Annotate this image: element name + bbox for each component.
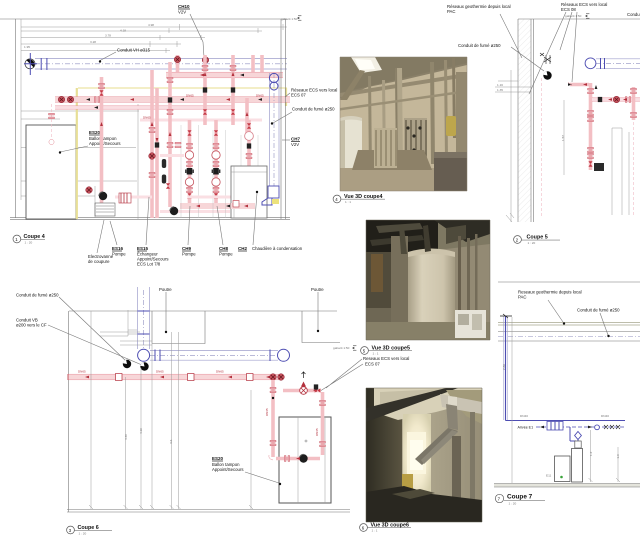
- svg-text:ECS 07: ECS 07: [365, 362, 380, 367]
- svg-text:6: 6: [362, 525, 365, 530]
- svg-text:ø200 vers le CF: ø200 vers le CF: [16, 323, 47, 328]
- svg-text:DN65: DN65: [186, 94, 194, 98]
- svg-text:Coupe 6: Coupe 6: [78, 525, 99, 531]
- svg-text:1.16: 1.16: [497, 83, 503, 87]
- svg-text:V2V: V2V: [178, 10, 186, 15]
- svg-text:ECS 08: ECS 08: [561, 7, 576, 12]
- svg-text:1 : 1: 1 : 1: [345, 200, 351, 204]
- svg-text:DN65: DN65: [265, 408, 269, 416]
- svg-text:1.0: 1.0: [616, 454, 620, 459]
- svg-text:1 : 20: 1 : 20: [509, 502, 517, 506]
- svg-text:Vue 3D coupe5: Vue 3D coupe5: [372, 345, 410, 351]
- svg-text:E11: E11: [546, 474, 552, 478]
- svg-text:3: 3: [69, 528, 72, 533]
- svg-text:Chaudière à condensation: Chaudière à condensation: [252, 246, 303, 251]
- svg-text:Appoint/Secours: Appoint/Secours: [89, 141, 121, 146]
- svg-text:Pompe: Pompe: [182, 252, 196, 257]
- svg-text:Pompe: Pompe: [112, 252, 126, 257]
- svg-text:2: 2: [516, 237, 519, 242]
- svg-text:1 : 20: 1 : 20: [528, 241, 536, 245]
- svg-text:PAC: PAC: [518, 295, 527, 300]
- svg-text:Réseaux geothermie depuis loca: Réseaux geothermie depuis local: [447, 4, 511, 9]
- svg-text:DN40: DN40: [520, 414, 528, 418]
- svg-text:3.6: 3.6: [169, 439, 173, 444]
- svg-text:Conduit de fumé ø250: Conduit de fumé ø250: [292, 107, 335, 112]
- svg-text:5: 5: [363, 348, 366, 353]
- svg-text:DN40: DN40: [601, 414, 609, 418]
- svg-text:1: 1: [15, 237, 18, 242]
- svg-text:1.95: 1.95: [24, 45, 30, 49]
- svg-text:4.98: 4.98: [148, 23, 154, 27]
- svg-text:DN65: DN65: [256, 94, 264, 98]
- svg-text:ES20: ES20: [89, 130, 101, 135]
- svg-text:ECS Lot 7/8: ECS Lot 7/8: [137, 262, 161, 267]
- svg-text:gabarit 1:50: gabarit 1:50: [565, 14, 582, 18]
- svg-text:4.18: 4.18: [120, 29, 126, 33]
- svg-text:Arivée E1: Arivée E1: [518, 426, 534, 430]
- svg-text:4: 4: [335, 197, 338, 202]
- svg-text:CH2: CH2: [238, 246, 247, 251]
- svg-text:Appoint/Secours: Appoint/Secours: [212, 467, 244, 472]
- svg-text:Coupe 5: Coupe 5: [527, 235, 548, 241]
- svg-text:1.35: 1.35: [497, 88, 503, 92]
- svg-text:1 : 1: 1 : 1: [372, 529, 378, 533]
- svg-text:DN65: DN65: [315, 428, 319, 436]
- svg-text:1.57: 1.57: [561, 135, 565, 141]
- svg-text:Condu: Condu: [627, 12, 640, 17]
- svg-text:Reseaux geothermie depuis loca: Reseaux geothermie depuis local: [518, 290, 582, 295]
- svg-text:ES16: ES16: [112, 246, 124, 251]
- svg-text:2.86: 2.86: [502, 364, 506, 370]
- svg-text:DN65: DN65: [143, 116, 151, 120]
- svg-text:Conduit VH ø315: Conduit VH ø315: [117, 48, 151, 53]
- svg-text:DN65: DN65: [216, 370, 224, 374]
- svg-text:3.28: 3.28: [90, 40, 96, 44]
- svg-text:4.10: 4.10: [139, 428, 143, 434]
- svg-text:Conduit de fumé ø250: Conduit de fumé ø250: [577, 308, 620, 313]
- svg-text:CH7: CH7: [291, 137, 300, 142]
- svg-text:Conduit de fumé ø250: Conduit de fumé ø250: [16, 293, 59, 298]
- svg-text:7: 7: [498, 496, 501, 501]
- svg-text:Conduit de fumé ø250: Conduit de fumé ø250: [458, 43, 501, 48]
- svg-text:1 : 20: 1 : 20: [25, 240, 33, 244]
- svg-text:CH8: CH8: [219, 246, 228, 251]
- svg-text:gabarit 1:50: gabarit 1:50: [281, 17, 298, 21]
- svg-text:gabarit 1:50: gabarit 1:50: [333, 346, 350, 350]
- svg-text:Vue 3D coupe6: Vue 3D coupe6: [371, 522, 409, 528]
- svg-text:Pompe: Pompe: [219, 252, 233, 257]
- svg-text:DN65: DN65: [156, 370, 164, 374]
- svg-text:ECS 07: ECS 07: [291, 93, 306, 98]
- svg-text:CH9: CH9: [182, 246, 191, 251]
- svg-text:DN65: DN65: [78, 370, 86, 374]
- svg-text:ES20: ES20: [212, 456, 224, 461]
- svg-text:de coupure: de coupure: [88, 259, 110, 264]
- svg-text:1.2: 1.2: [589, 451, 593, 456]
- svg-text:ES15: ES15: [137, 246, 149, 251]
- svg-text:Reseaux ECS vers local: Reseaux ECS vers local: [363, 356, 409, 361]
- svg-text:Poutre: Poutre: [159, 287, 172, 292]
- svg-text:V2V: V2V: [291, 142, 299, 147]
- svg-text:3.78: 3.78: [105, 34, 111, 38]
- svg-text:Coupe 7: Coupe 7: [507, 494, 533, 501]
- svg-text:Poutre: Poutre: [311, 287, 324, 292]
- svg-text:4.40: 4.40: [124, 434, 128, 440]
- svg-text:PAC: PAC: [447, 9, 456, 14]
- svg-text:Coupe 4: Coupe 4: [24, 234, 45, 240]
- svg-text:CH10: CH10: [178, 4, 190, 9]
- svg-text:1 : 20: 1 : 20: [79, 531, 87, 535]
